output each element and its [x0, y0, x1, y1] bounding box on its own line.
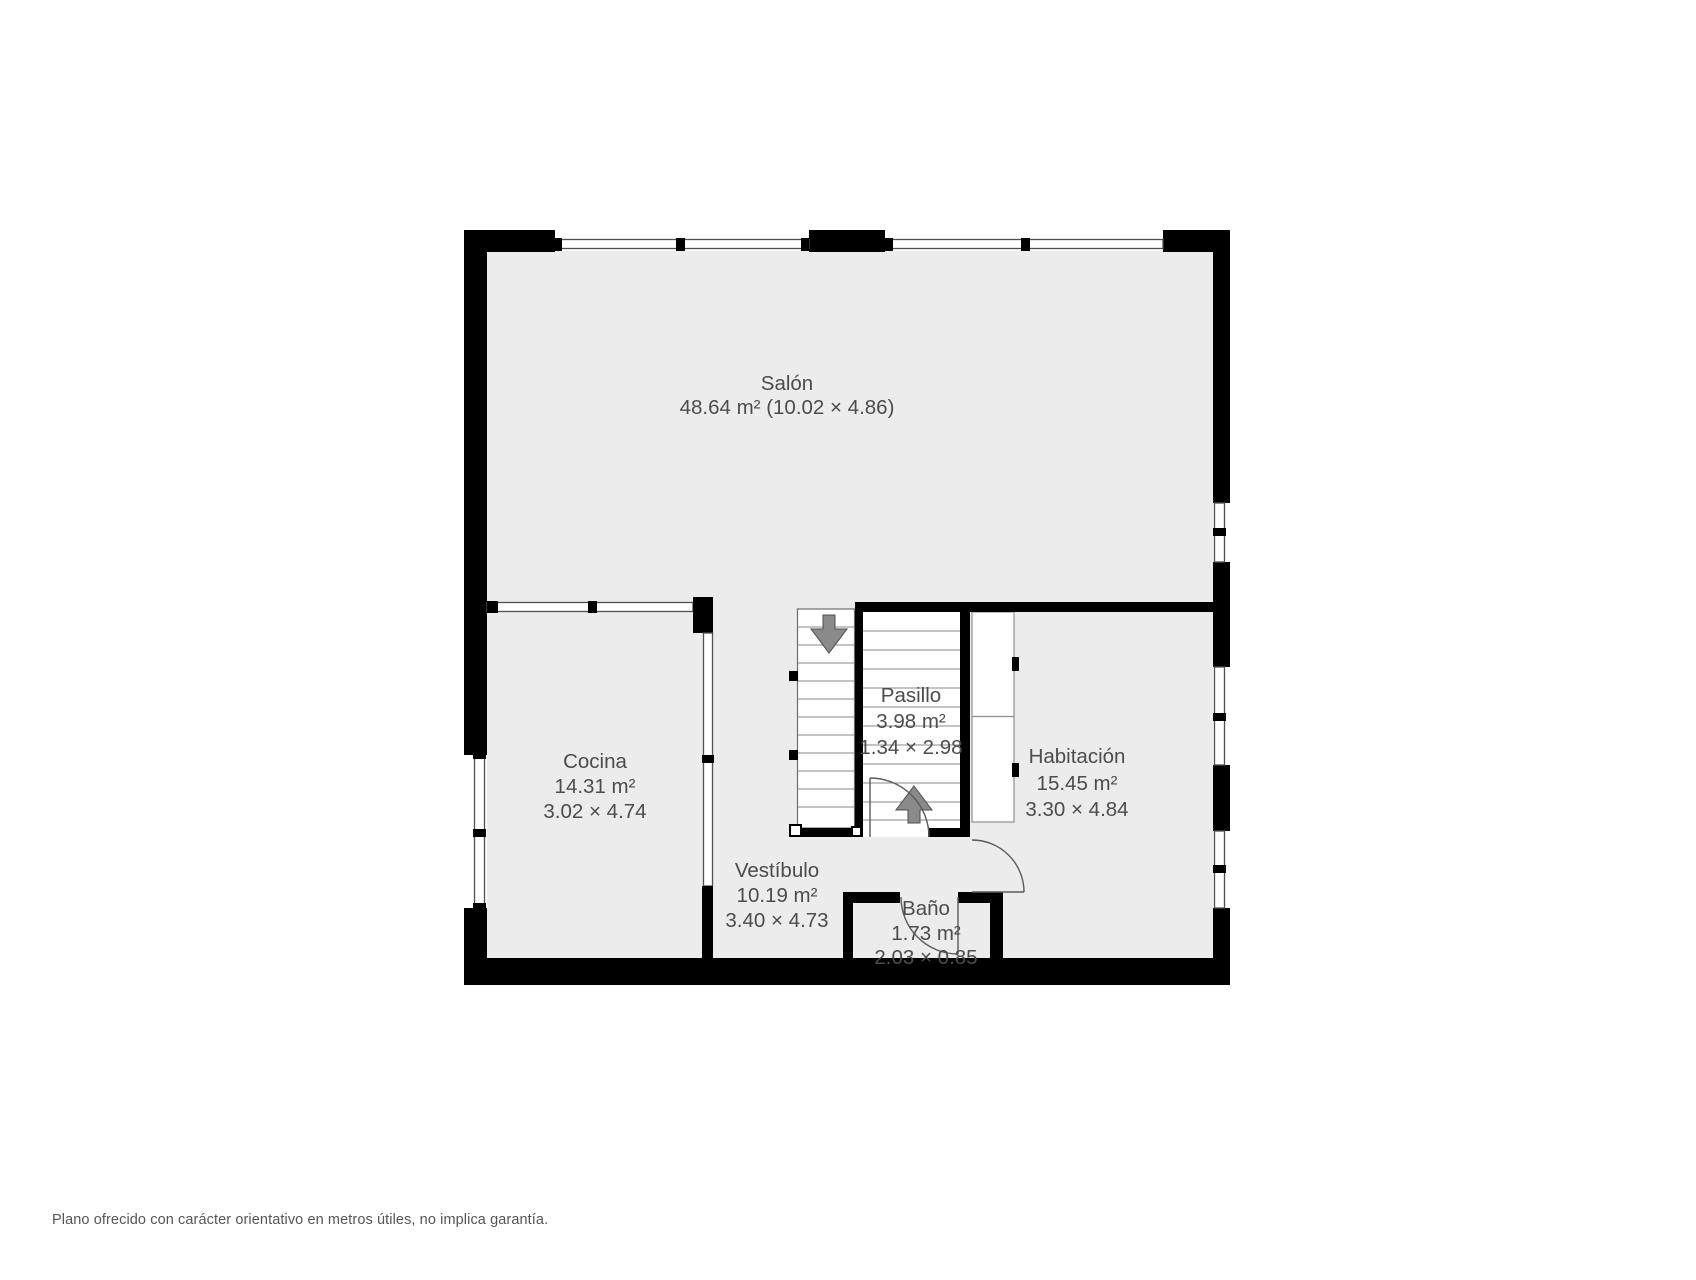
- window-post: [1213, 528, 1226, 536]
- wall-segment: [693, 597, 713, 633]
- window-post: [1021, 238, 1030, 251]
- stair-bracket: [789, 671, 798, 681]
- wardrobe-handle: [1012, 657, 1019, 671]
- room-label-salon: Salón: [761, 372, 813, 395]
- window-post: [702, 755, 714, 763]
- room-dims-pasillo: 1.34 × 2.98: [859, 736, 962, 759]
- window-post: [1213, 865, 1226, 873]
- wall-segment: [1213, 562, 1230, 667]
- wall-segment: [1213, 239, 1230, 503]
- newel-post: [852, 827, 861, 836]
- wall-segment: [702, 886, 713, 958]
- window-post: [1213, 713, 1226, 721]
- room-dims-cocina: 3.02 × 4.74: [543, 800, 646, 823]
- wall-segment: [960, 602, 970, 837]
- wall-segment: [843, 892, 853, 958]
- floorplan-drawing: Salón 48.64 m² (10.02 × 4.86) Cocina 14.…: [0, 0, 1696, 1280]
- room-label-bano: Baño: [902, 897, 950, 920]
- room-area-vestibulo: 10.19 m²: [737, 884, 818, 907]
- room-area-cocina: 14.31 m²: [555, 775, 636, 798]
- room-area-pasillo: 3.98 m²: [876, 710, 946, 733]
- window-post: [588, 601, 597, 613]
- room-label-pasillo: Pasillo: [881, 684, 941, 707]
- wall-segment: [990, 892, 1003, 958]
- room-area-bano: 1.73 m²: [891, 922, 961, 945]
- room-label-habitacion: Habitación: [1029, 745, 1126, 768]
- room-dims-habitacion: 3.30 × 4.84: [1025, 798, 1128, 821]
- room-label-cocina: Cocina: [563, 750, 627, 773]
- wardrobe: [972, 612, 1019, 822]
- room-detail-salon: 48.64 m² (10.02 × 4.86): [680, 396, 895, 419]
- room-label-vestibulo: Vestíbulo: [735, 859, 819, 882]
- wall-segment: [928, 828, 970, 837]
- room-dims-bano: 2.03 × 0.85: [874, 946, 977, 969]
- wall-segment: [464, 231, 487, 755]
- window-post: [884, 238, 893, 251]
- floorplan-page: Salón 48.64 m² (10.02 × 4.86) Cocina 14.…: [0, 0, 1696, 1280]
- window-post: [473, 903, 486, 910]
- wardrobe-handle: [1012, 763, 1019, 777]
- wall-segment: [464, 958, 1230, 985]
- window-post: [801, 238, 809, 251]
- disclaimer-text: Plano ofrecido con carácter orientativo …: [52, 1212, 548, 1228]
- newel-post: [790, 825, 801, 836]
- window-post: [473, 829, 486, 837]
- window-post: [487, 601, 498, 613]
- room-area-habitacion: 15.45 m²: [1037, 772, 1118, 795]
- wall-segment: [855, 602, 1230, 612]
- room-dims-vestibulo: 3.40 × 4.73: [725, 909, 828, 932]
- wall-segment: [855, 602, 863, 837]
- window-post: [676, 238, 685, 251]
- wall-segment: [809, 230, 885, 252]
- wall-segment: [464, 230, 555, 252]
- window-post: [473, 752, 486, 759]
- wall-segment: [1213, 765, 1230, 831]
- window-post: [553, 238, 562, 251]
- stair-bracket: [789, 750, 798, 760]
